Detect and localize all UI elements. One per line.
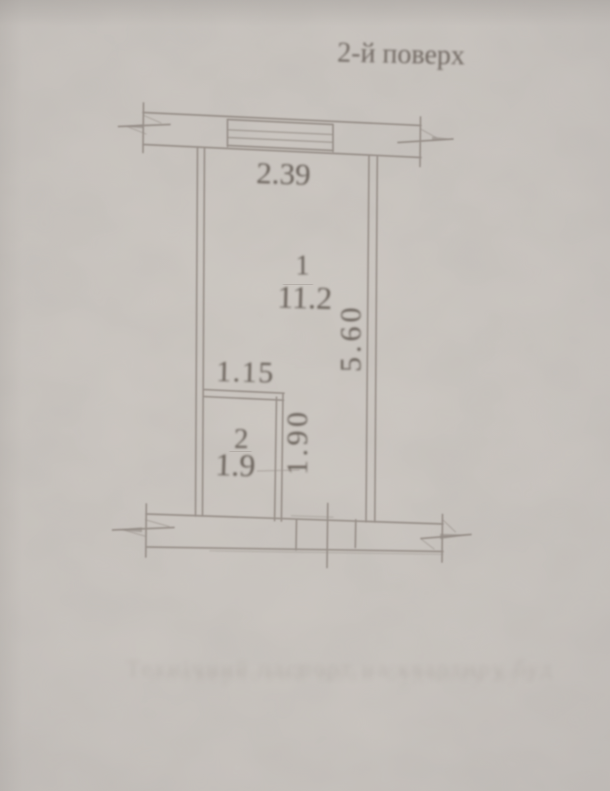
svg-text:1: 1 bbox=[296, 251, 310, 282]
svg-text:пповерховий план будинку вул: пповерховий план будинку вул bbox=[150, 662, 537, 686]
svg-text:11.2: 11.2 bbox=[277, 279, 333, 317]
svg-text:5.60: 5.60 bbox=[335, 304, 368, 373]
svg-text:2.39: 2.39 bbox=[256, 155, 311, 192]
svg-text:2-й поверх: 2-й поверх bbox=[337, 38, 465, 72]
svg-text:1.9: 1.9 bbox=[215, 446, 256, 483]
svg-text:1.15: 1.15 bbox=[216, 355, 275, 390]
svg-text:1.90: 1.90 bbox=[281, 409, 314, 476]
